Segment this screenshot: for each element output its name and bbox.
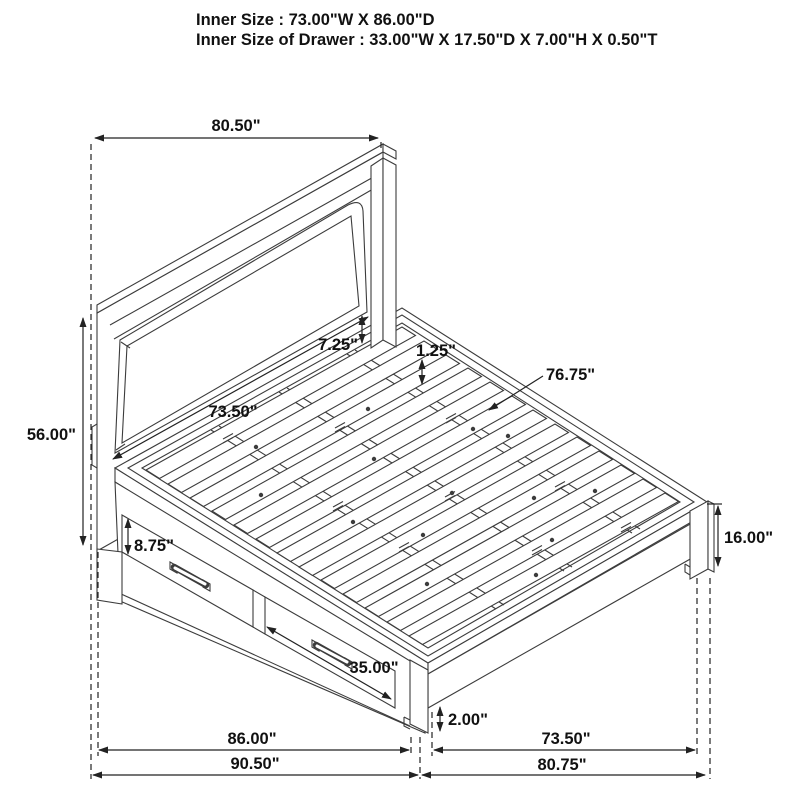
dim-label: 56.00" xyxy=(27,426,76,444)
dim-label: 80.50" xyxy=(211,117,260,135)
dim-clearance: 2.00" xyxy=(432,707,488,756)
headboard-right-post xyxy=(371,158,396,348)
front-foot-post xyxy=(410,660,428,733)
dim-label: 8.75" xyxy=(134,537,174,555)
header-line1: Inner Size : 73.00"W X 86.00"D xyxy=(196,11,435,29)
header-line2: Inner Size of Drawer : 33.00"W X 17.50"D… xyxy=(196,31,657,49)
dim-label: 80.75" xyxy=(537,756,586,774)
dim-label: 16.00" xyxy=(724,529,773,547)
dim-label: 1.25" xyxy=(416,342,456,360)
dim-label: 76.75" xyxy=(546,366,595,384)
right-foot-step xyxy=(685,564,690,575)
dim-label: 86.00" xyxy=(227,730,276,748)
bed-isometric-drawing: Inner Size : 73.00"W X 86.00"D Inner Siz… xyxy=(0,0,800,800)
header: Inner Size : 73.00"W X 86.00"D Inner Siz… xyxy=(196,11,657,49)
dim-inner-width: 73.50" xyxy=(434,730,695,750)
bed-dimension-diagram-page: Inner Size : 73.00"W X 86.00"D Inner Siz… xyxy=(0,0,800,800)
dim-headboard-height: 56.00" xyxy=(27,318,83,545)
dim-label: 35.00" xyxy=(349,659,398,677)
dim-label: 2.00" xyxy=(448,711,488,729)
dim-overall-width: 80.75" xyxy=(422,756,705,775)
dim-label: 7.25" xyxy=(318,336,358,354)
headboard-cap-side xyxy=(383,144,396,159)
dim-label: 73.50" xyxy=(208,403,257,421)
dim-label: 90.50" xyxy=(230,755,279,773)
dim-label: 73.50" xyxy=(541,730,590,748)
right-foot-post xyxy=(690,501,708,579)
right-foot-post-side xyxy=(708,501,714,572)
